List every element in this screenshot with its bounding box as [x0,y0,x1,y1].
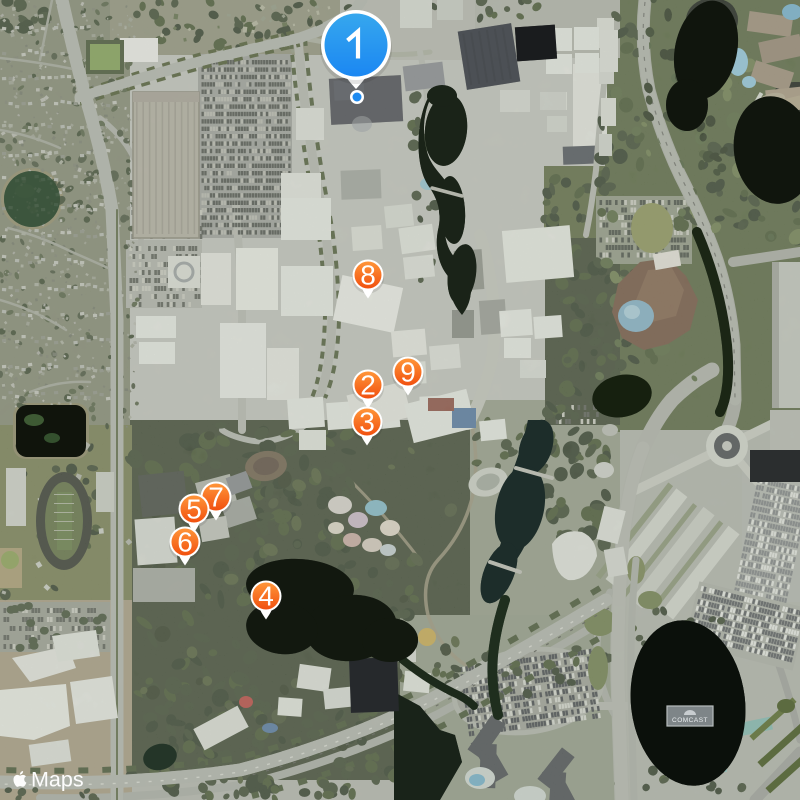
svg-text:5: 5 [186,494,202,525]
svg-text:2: 2 [360,370,376,401]
svg-text:4: 4 [258,581,274,612]
svg-text:7: 7 [208,482,224,513]
svg-text:3: 3 [359,407,375,438]
svg-text:8: 8 [360,260,376,291]
svg-text:9: 9 [400,357,416,388]
svg-text:COMCAST: COMCAST [672,717,708,724]
svg-text:Maps: Maps [31,768,84,792]
svg-text:6: 6 [177,527,193,558]
